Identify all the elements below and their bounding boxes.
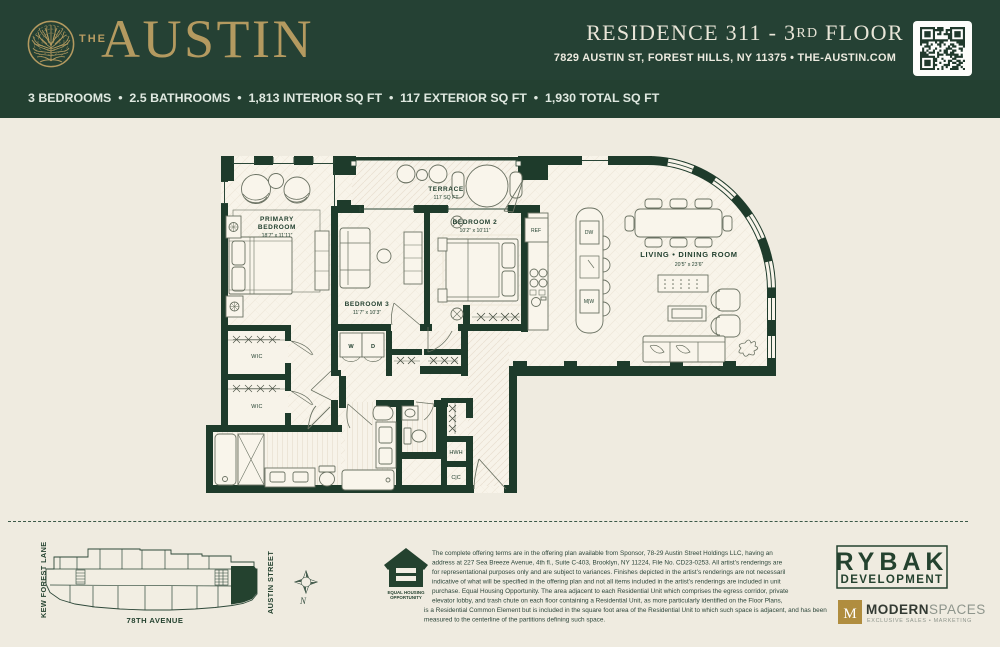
svg-text:AUSTIN STREET: AUSTIN STREET — [266, 551, 275, 614]
svg-text:C|C: C|C — [451, 475, 460, 481]
svg-text:DEVELOPMENT: DEVELOPMENT — [841, 574, 944, 586]
svg-text:M: M — [843, 606, 856, 622]
svg-text:LIVING • DINING ROOM: LIVING • DINING ROOM — [640, 250, 737, 259]
svg-text:D: D — [371, 344, 375, 350]
svg-text:20’5” x 23’6”: 20’5” x 23’6” — [675, 262, 704, 268]
svg-text:M|W: M|W — [584, 299, 594, 305]
svg-text:WIC: WIC — [251, 354, 262, 360]
svg-text:BEDROOM 2: BEDROOM 2 — [453, 219, 498, 226]
svg-text:OPPORTUNITY: OPPORTUNITY — [390, 595, 422, 600]
svg-text:is a Residential Common Elemen: is a Residential Common Element but is i… — [424, 607, 827, 614]
svg-text:measured to the centerline of: measured to the centerline of the partit… — [424, 617, 605, 624]
svg-text:for representational purposes: for representational purposes only and a… — [432, 569, 785, 576]
svg-text:18’7” x 11’11”: 18’7” x 11’11” — [262, 233, 293, 239]
svg-text:purchase. Equal Housing Opport: purchase. Equal Housing Opportunity. The… — [432, 588, 789, 595]
svg-text:DW: DW — [585, 230, 594, 236]
svg-text:address at 227 Sea Breeze Aven: address at 227 Sea Breeze Avenue, 4th fl… — [432, 560, 783, 567]
svg-text:10’2” x 10’11”: 10’2” x 10’11” — [459, 228, 490, 234]
svg-text:TERRACE: TERRACE — [428, 186, 464, 193]
svg-text:indicative of what will be spe: indicative of what will be specified in … — [432, 579, 781, 586]
svg-text:EXCLUSIVE SALES • MARKETING: EXCLUSIVE SALES • MARKETING — [867, 618, 972, 624]
svg-text:117 SQ FT: 117 SQ FT — [434, 195, 460, 201]
svg-text:PRIMARY: PRIMARY — [260, 216, 294, 223]
svg-text:BEDROOM: BEDROOM — [258, 224, 296, 231]
svg-text:REF: REF — [531, 228, 541, 234]
svg-text:WIC: WIC — [251, 404, 262, 410]
svg-text:N: N — [299, 596, 307, 606]
svg-text:elevator lobby, and trash chut: elevator lobby, and trash chute on each … — [432, 598, 783, 605]
svg-text:KEW FOREST LANE: KEW FOREST LANE — [39, 541, 48, 618]
svg-text:BEDROOM 3: BEDROOM 3 — [345, 301, 390, 308]
svg-text:78TH AVENUE: 78TH AVENUE — [127, 616, 184, 625]
svg-text:MODERNSPACES: MODERNSPACES — [866, 602, 986, 617]
svg-text:The complete offering terms ar: The complete offering terms are in the o… — [432, 550, 773, 557]
svg-text:11’7” x 10’3”: 11’7” x 10’3” — [353, 310, 381, 316]
svg-text:HWH: HWH — [449, 450, 462, 456]
svg-text:W: W — [348, 344, 354, 350]
svg-text:RYBAK: RYBAK — [836, 548, 949, 576]
